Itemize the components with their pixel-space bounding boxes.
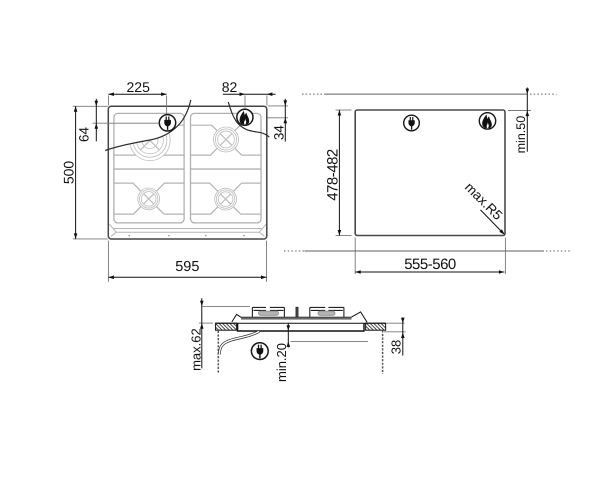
svg-text:34: 34: [272, 125, 287, 141]
svg-text:min.50: min.50: [514, 116, 528, 154]
svg-text:max.62: max.62: [189, 328, 204, 371]
svg-text:38: 38: [388, 340, 403, 354]
svg-text:min.20: min.20: [274, 343, 289, 382]
svg-text:82: 82: [222, 79, 238, 95]
svg-text:595: 595: [175, 259, 199, 275]
svg-text:555-560: 555-560: [404, 256, 456, 273]
svg-text:64: 64: [76, 127, 91, 143]
svg-text:500: 500: [61, 161, 77, 185]
svg-text:225: 225: [127, 79, 151, 95]
svg-text:478-482: 478-482: [325, 149, 342, 201]
